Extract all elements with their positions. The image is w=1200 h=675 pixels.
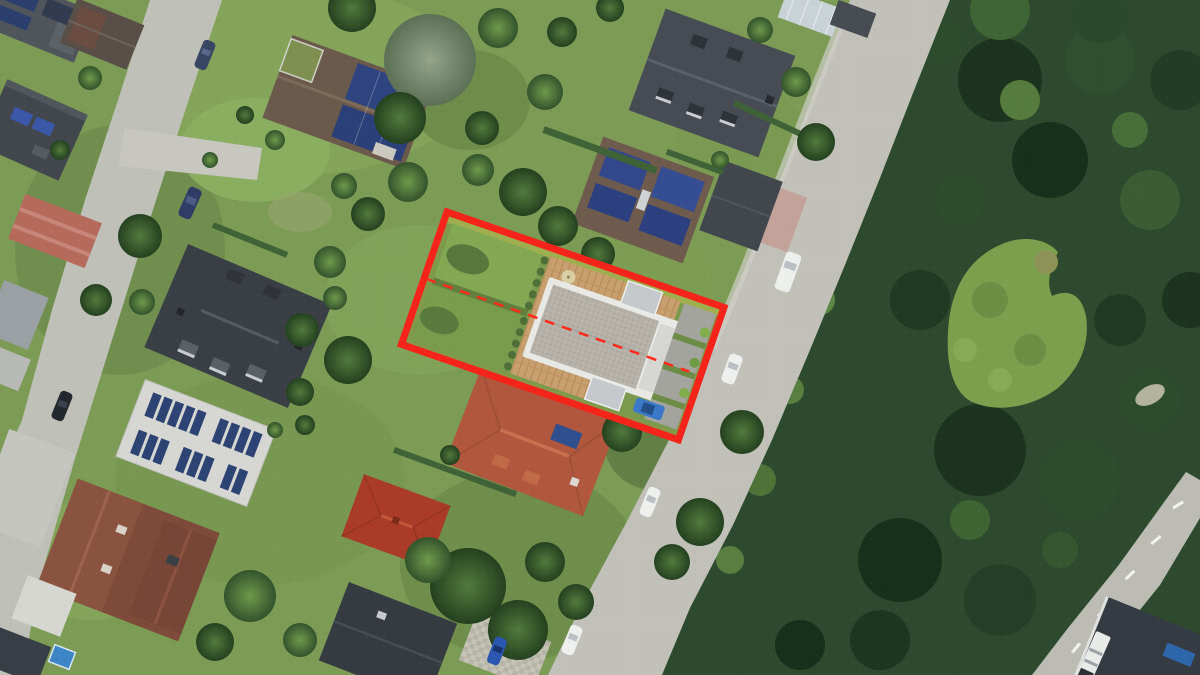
photo-grain [0,0,1200,675]
satellite-image [0,0,1200,675]
aerial-view [0,0,1200,675]
